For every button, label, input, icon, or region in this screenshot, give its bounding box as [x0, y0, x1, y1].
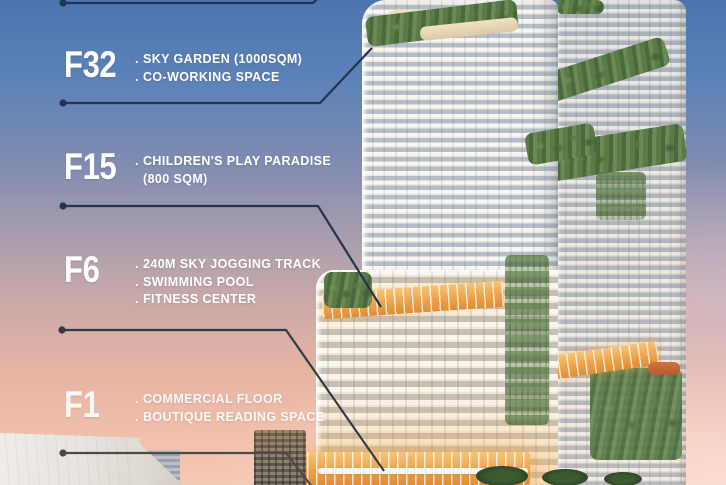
amenity-line: (800 SQM) [135, 171, 331, 189]
bullet: . [135, 69, 143, 87]
amenity-text: SWIMMING POOL [143, 274, 254, 292]
podium-trees [324, 272, 372, 308]
floor-annotation-f32: F32 .SKY GARDEN (1000SQM) .CO-WORKING SP… [64, 48, 302, 86]
bullet [135, 171, 143, 189]
amenity-text: FITNESS CENTER [143, 291, 256, 309]
amenity-text: SKY GARDEN (1000SQM) [143, 51, 302, 69]
bullet: . [135, 51, 143, 69]
amenity-text: CHILDREN'S PLAY PARADISE [143, 153, 331, 171]
bullet: . [135, 153, 143, 171]
hanging-vines-right [596, 172, 646, 220]
amenity-line: .COMMERCIAL FLOOR [135, 391, 325, 409]
bullet: . [135, 256, 143, 274]
amenity-line: .FITNESS CENTER [135, 291, 321, 309]
hanging-vines-center [505, 255, 549, 425]
balcony-accent-right-edge [648, 362, 680, 375]
greenery-patch-lower-right [590, 368, 682, 460]
floor-label: F32 [64, 48, 116, 86]
floor-annotation-f1: F1 .COMMERCIAL FLOOR .BOUTIQUE READING S… [64, 388, 325, 426]
amenity-list: .COMMERCIAL FLOOR .BOUTIQUE READING SPAC… [135, 388, 325, 426]
amenity-line: .SWIMMING POOL [135, 274, 321, 292]
bullet: . [135, 409, 143, 427]
tree [476, 466, 528, 485]
amenity-list: .240M SKY JOGGING TRACK .SWIMMING POOL .… [135, 253, 321, 309]
amenity-line: .BOUTIQUE READING SPACE [135, 409, 325, 427]
floor-label: F15 [64, 150, 116, 188]
rooftop-garden [556, 0, 604, 14]
amenity-line: .CHILDREN'S PLAY PARADISE [135, 153, 331, 171]
amenity-text: BOUTIQUE READING SPACE [143, 409, 325, 427]
floor-annotation-f6: F6 .240M SKY JOGGING TRACK .SWIMMING POO… [64, 253, 321, 309]
amenity-line: .240M SKY JOGGING TRACK [135, 256, 321, 274]
amenity-text: (800 SQM) [143, 171, 208, 189]
tree [604, 472, 642, 485]
bullet: . [135, 391, 143, 409]
amenity-line: .CO-WORKING SPACE [135, 69, 302, 87]
amenity-text: 240M SKY JOGGING TRACK [143, 256, 321, 274]
tree [542, 469, 588, 485]
foreground-wall [0, 432, 140, 485]
amenity-text: COMMERCIAL FLOOR [143, 391, 283, 409]
amenity-list: .SKY GARDEN (1000SQM) .CO-WORKING SPACE [135, 48, 302, 86]
amenity-line: .SKY GARDEN (1000SQM) [135, 51, 302, 69]
amenity-list: .CHILDREN'S PLAY PARADISE (800 SQM) [135, 150, 331, 188]
bullet: . [135, 291, 143, 309]
background-tower [254, 430, 306, 485]
floor-annotation-f15: F15 .CHILDREN'S PLAY PARADISE (800 SQM) [64, 150, 331, 188]
bullet: . [135, 274, 143, 292]
floor-amenities-infographic: F32 .SKY GARDEN (1000SQM) .CO-WORKING SP… [0, 0, 726, 485]
floor-label: F6 [64, 253, 116, 309]
amenity-text: CO-WORKING SPACE [143, 69, 280, 87]
floor-label: F1 [64, 388, 116, 426]
